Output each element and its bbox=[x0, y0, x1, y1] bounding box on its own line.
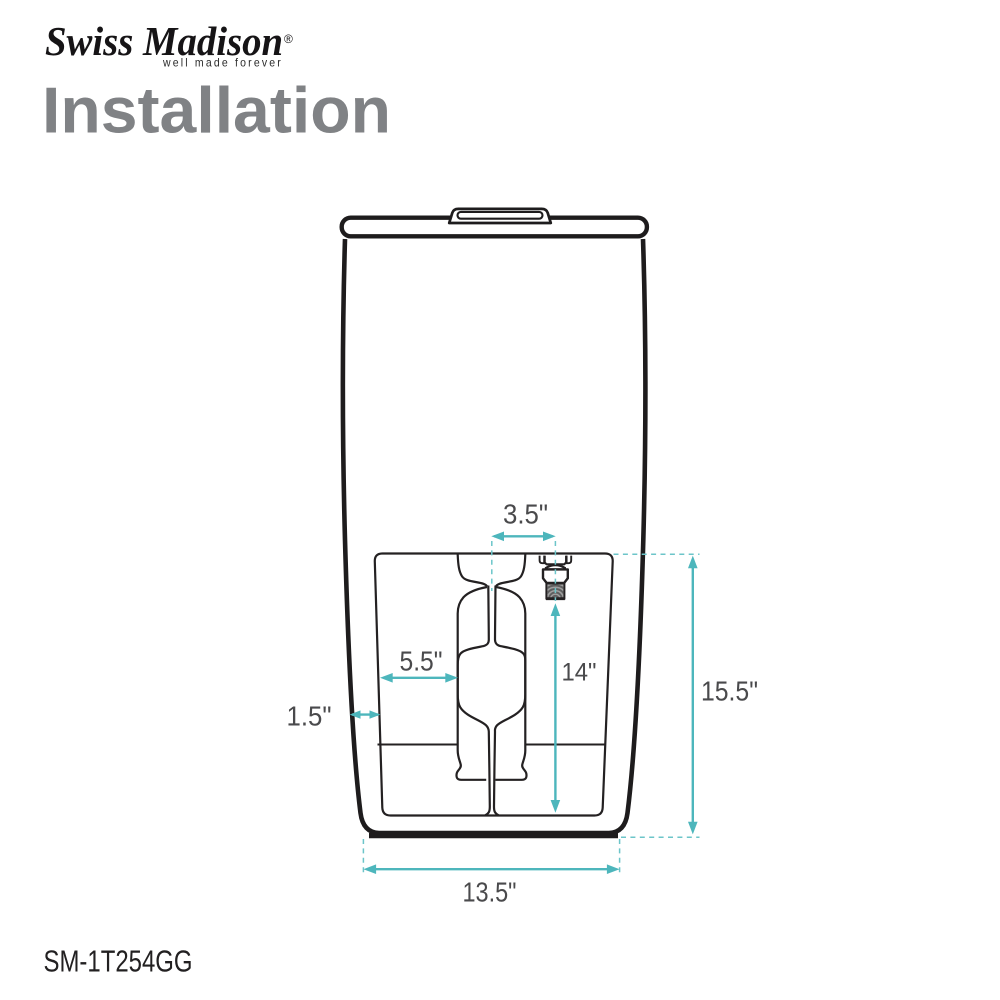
svg-text:well made forever: well made forever bbox=[162, 56, 283, 70]
svg-text:®: ® bbox=[284, 32, 293, 46]
svg-text:Installation: Installation bbox=[42, 74, 391, 146]
svg-text:13.5": 13.5" bbox=[463, 877, 517, 908]
svg-text:15.5": 15.5" bbox=[701, 676, 758, 707]
svg-text:5.5": 5.5" bbox=[400, 646, 443, 677]
svg-text:14": 14" bbox=[562, 659, 597, 687]
svg-text:SM-1T254GG: SM-1T254GG bbox=[44, 944, 193, 979]
svg-text:1.5": 1.5" bbox=[287, 701, 332, 732]
svg-text:3.5": 3.5" bbox=[503, 499, 548, 530]
